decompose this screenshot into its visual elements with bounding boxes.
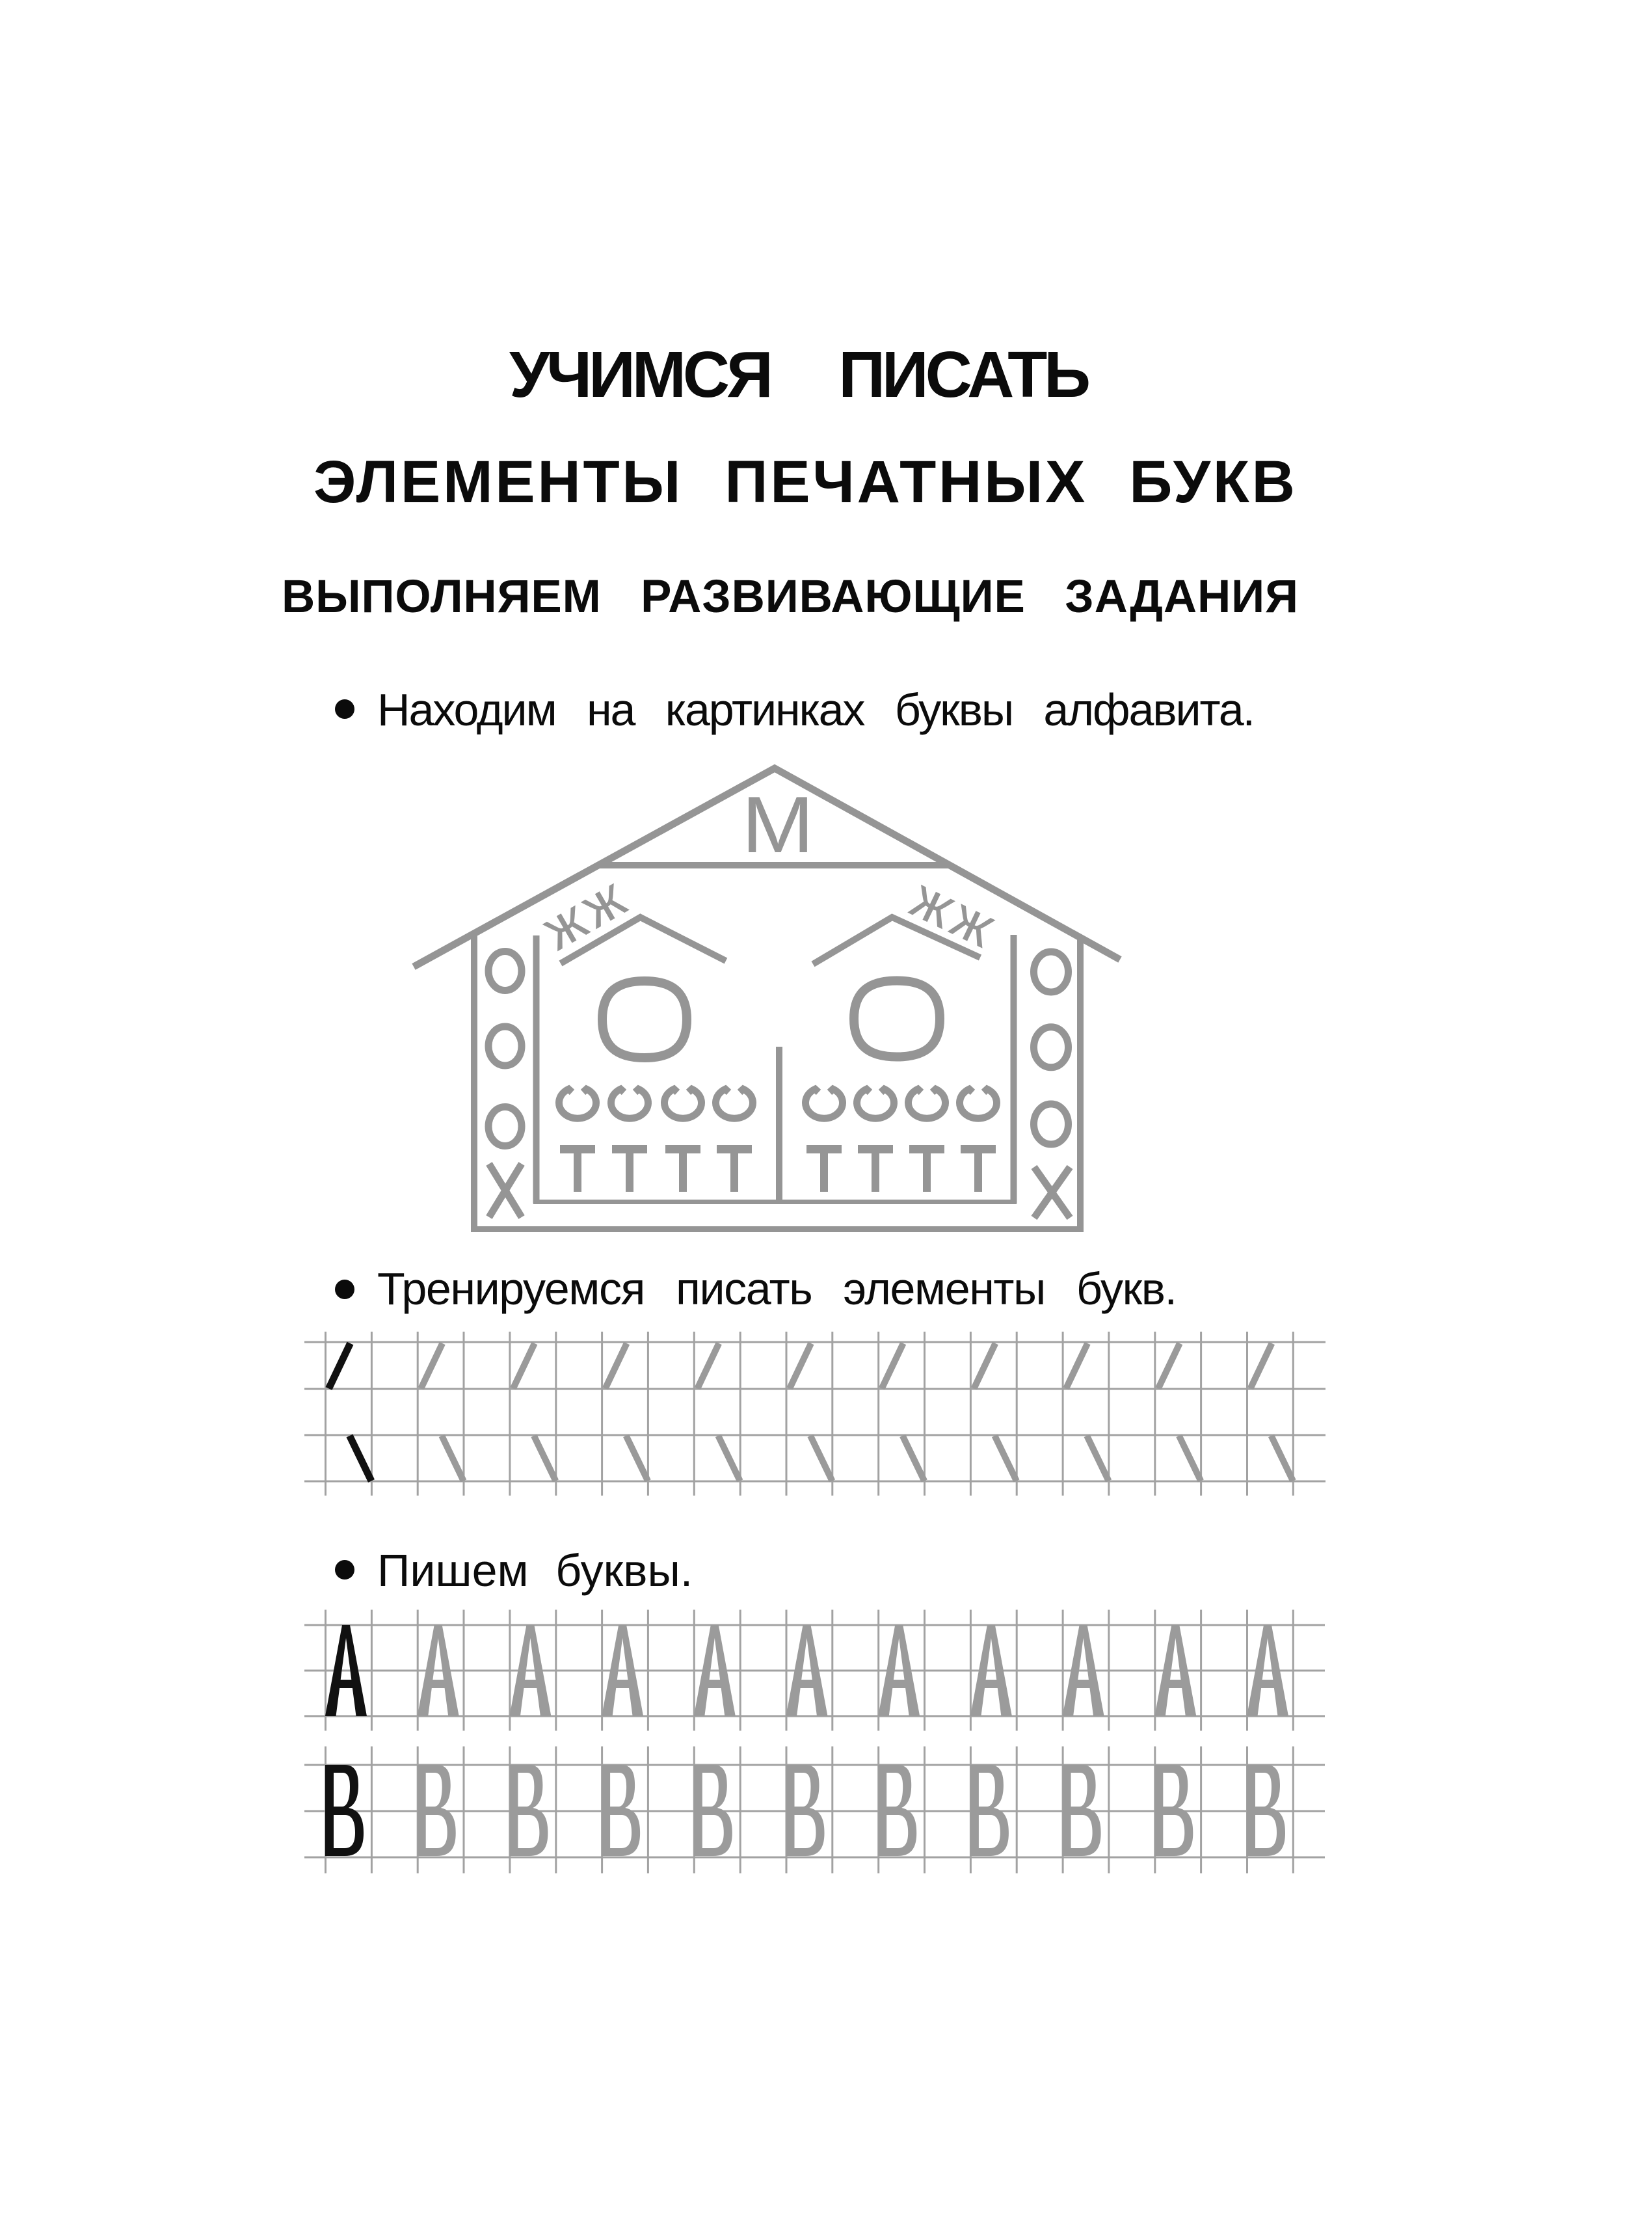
svg-text:ЭЛЕМЕНТЫ ПЕЧАТНЫХ БУКВ: ЭЛЕМЕНТЫ ПЕЧАТНЫХ БУКВ [313, 449, 1295, 515]
svg-text:ВЫПОЛНЯЕМ РАЗВИВАЮЩИЕ ЗАДАНИЯ: ВЫПОЛНЯЕМ РАЗВИВАЮЩИЕ ЗАДАНИЯ [282, 571, 1298, 623]
svg-text:Пишем буквы.: Пишем буквы. [377, 1545, 693, 1596]
svg-text:Находим на картинках буквы алф: Находим на картинках буквы алфавита. [377, 684, 1255, 735]
svg-text:УЧИМСЯ ПИСАТЬ: УЧИМСЯ ПИСАТЬ [509, 338, 1091, 411]
svg-text:Тренируемся писать элементы бу: Тренируемся писать элементы букв. [377, 1263, 1177, 1314]
svg-text:М: М [741, 781, 814, 870]
